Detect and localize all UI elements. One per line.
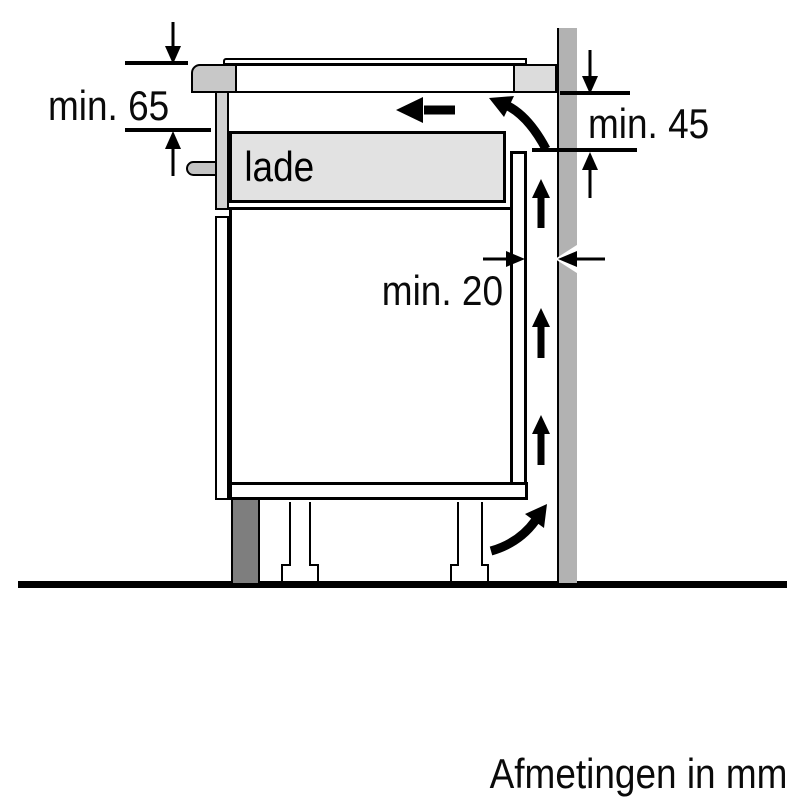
dimension-right-arrow-icon [506, 251, 525, 267]
dimension-up-arrow-icon [165, 131, 181, 149]
airflow-left-arrow-icon [396, 97, 423, 123]
min65-label: min. 65 [48, 84, 169, 128]
min20-label: min. 20 [360, 269, 503, 313]
airflow-arrows [396, 96, 550, 551]
installation-diagram: lade [0, 0, 800, 800]
airflow-up-arrow-icon [532, 415, 550, 434]
airflow-curved-bottom-arrow-icon [491, 521, 535, 551]
min45-label: min. 45 [588, 102, 709, 146]
footer-caption: Afmetingen in mm [489, 752, 787, 796]
airflow-curved-top-arrow-icon [508, 106, 546, 149]
dimension-up-arrow-icon [582, 152, 598, 170]
airflow-up-arrow-icon [532, 179, 550, 198]
airflow-up-arrow-icon [532, 308, 550, 327]
